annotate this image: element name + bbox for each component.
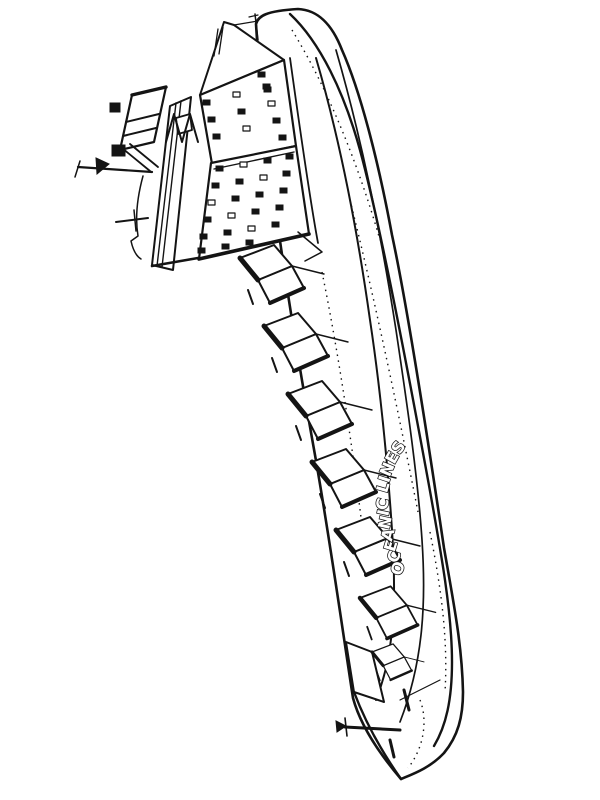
funnel-base-line-1 <box>122 148 150 171</box>
lower-spar <box>116 218 148 222</box>
funnel-mark-1 <box>110 103 120 112</box>
lower-spar-cross <box>134 210 136 231</box>
stern-antenna-tick <box>249 15 258 17</box>
stern-deck-line <box>234 21 258 25</box>
funnel-mark-2 <box>112 145 125 156</box>
yard-pennant <box>96 158 109 174</box>
jackstaff-pennant <box>336 721 346 732</box>
port-bulwark-sketch <box>131 176 143 259</box>
ocean-liner-line-art: OCEANIC LINES <box>0 0 600 800</box>
signal-yard <box>78 167 152 172</box>
coloring-page: OCEANIC LINES <box>0 0 600 800</box>
funnel-base-line-2 <box>130 144 158 167</box>
yard-end-tick <box>75 161 80 177</box>
